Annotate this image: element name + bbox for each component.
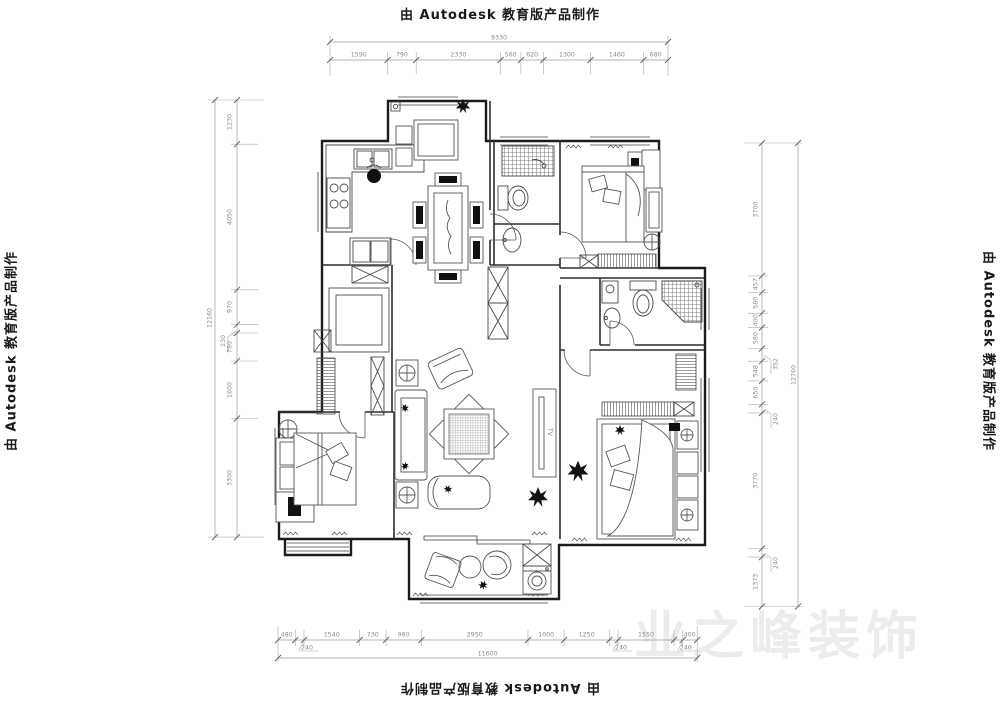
dim-label: 1300 <box>559 52 575 59</box>
dim-label: 650 <box>753 387 760 399</box>
dimension-chain-left: 12160 1230 4050 970 780 1600 3300 230 <box>207 97 265 540</box>
dim-label: 12160 <box>207 308 214 328</box>
dim-label: 1230 <box>227 114 234 130</box>
dim-label: 352 <box>773 358 780 370</box>
basin-symbol <box>604 308 620 328</box>
dim-label: 240 <box>680 645 692 652</box>
dim-label: 1250 <box>579 632 595 639</box>
dim-label: 620 <box>526 52 538 59</box>
plant-symbol <box>528 487 548 507</box>
tv-cabinet: TV <box>533 389 556 477</box>
end-table <box>396 482 418 508</box>
dim-label: 730 <box>367 632 379 639</box>
kettle-symbol <box>367 169 381 183</box>
radiator <box>602 402 674 416</box>
dim-label: 4050 <box>227 209 234 225</box>
dining-room <box>391 99 483 283</box>
bedroom-2 <box>276 420 356 535</box>
dim-label: 11600 <box>478 651 498 658</box>
dim-label: 1460 <box>609 52 625 59</box>
toilet-symbol <box>498 186 528 210</box>
radiator <box>598 254 656 268</box>
nightstand <box>677 421 698 449</box>
dim-label: 790 <box>396 52 408 59</box>
balcony <box>397 532 551 596</box>
lounge-chair <box>477 551 511 591</box>
dim-label: 560 <box>505 52 517 59</box>
lounge-chair <box>424 552 462 589</box>
dim-label: 580 <box>753 332 760 344</box>
dim-label: 240 <box>615 645 627 652</box>
dim-label: 780 <box>227 341 234 353</box>
dimension-chain-bottom: 11600 480 1540 730 980 2950 1000 1250 15… <box>275 626 700 662</box>
master-bedroom <box>568 354 698 541</box>
dim-label: 1000 <box>538 632 554 639</box>
bathroom-1 <box>498 146 554 252</box>
dim-label: 980 <box>398 632 410 639</box>
bathroom-2 <box>602 281 702 328</box>
toilet-symbol <box>630 281 656 316</box>
coffee-table <box>429 394 508 473</box>
dim-label: 230 <box>220 335 227 347</box>
dim-label: 9330 <box>491 35 507 42</box>
dimension-chain-right: 12760 3700 457 580 400 580 548 650 3770 … <box>744 140 802 610</box>
desk <box>646 188 662 232</box>
refrigerator-fixture <box>350 238 391 265</box>
dim-label: 400 <box>684 632 696 639</box>
corner-shower-symbol <box>662 281 702 322</box>
washing-machine <box>523 566 551 594</box>
dim-label: 1600 <box>227 382 234 398</box>
dim-label: 457 <box>753 278 760 290</box>
bed <box>582 166 644 242</box>
bedroom-1 <box>566 145 662 268</box>
dim-label: 580 <box>753 297 760 309</box>
dim-label: 3700 <box>753 201 760 217</box>
living-room: TV <box>395 347 556 509</box>
nightstand <box>677 500 698 530</box>
wardrobe <box>642 150 660 190</box>
tv-label: TV <box>546 427 553 437</box>
dim-label: 1550 <box>638 632 654 639</box>
cabinet-x <box>580 255 598 268</box>
dim-label: 970 <box>227 301 234 313</box>
armchair <box>427 347 474 390</box>
storage-room <box>329 288 389 352</box>
dim-label: 240 <box>773 557 780 569</box>
dim-label: 1590 <box>351 52 367 59</box>
stove-fixture <box>327 178 350 228</box>
round-table <box>459 556 481 578</box>
dim-label: 1373 <box>753 574 760 590</box>
floor-plan-canvas: TV <box>0 0 1000 702</box>
radiator-vertical <box>317 358 335 414</box>
shutter-cabinet <box>676 354 696 390</box>
dim-label: 1540 <box>324 632 340 639</box>
chaise <box>428 476 490 509</box>
dim-label: 3300 <box>227 470 234 486</box>
dim-label: 2330 <box>450 52 466 59</box>
dim-label: 240 <box>773 413 780 425</box>
dim-label: 240 <box>301 645 313 652</box>
bed <box>294 433 356 505</box>
dim-label: 2950 <box>467 632 483 639</box>
shower-symbol <box>502 146 554 176</box>
dining-table <box>428 186 468 270</box>
dim-label: 548 <box>753 365 760 377</box>
door-swings <box>339 214 634 438</box>
sideboard <box>414 120 458 160</box>
bed <box>597 419 675 539</box>
end-table <box>396 360 418 386</box>
dim-label: 680 <box>650 52 662 59</box>
dim-label: 12760 <box>791 365 798 385</box>
dim-label: 400 <box>753 314 760 326</box>
dimension-chain-top: 9330 1590 790 2330 560 620 1300 1460 680 <box>327 35 671 77</box>
plant-symbol <box>568 461 589 482</box>
sofa <box>395 390 427 480</box>
dim-label: 3770 <box>753 473 760 489</box>
dim-label: 480 <box>281 632 293 639</box>
drawing-sheet: 由 Autodesk 教育版产品制作 由 Autodesk 教育版产品制作 由 … <box>0 0 1000 702</box>
kitchen-sink-fixture <box>354 149 392 169</box>
